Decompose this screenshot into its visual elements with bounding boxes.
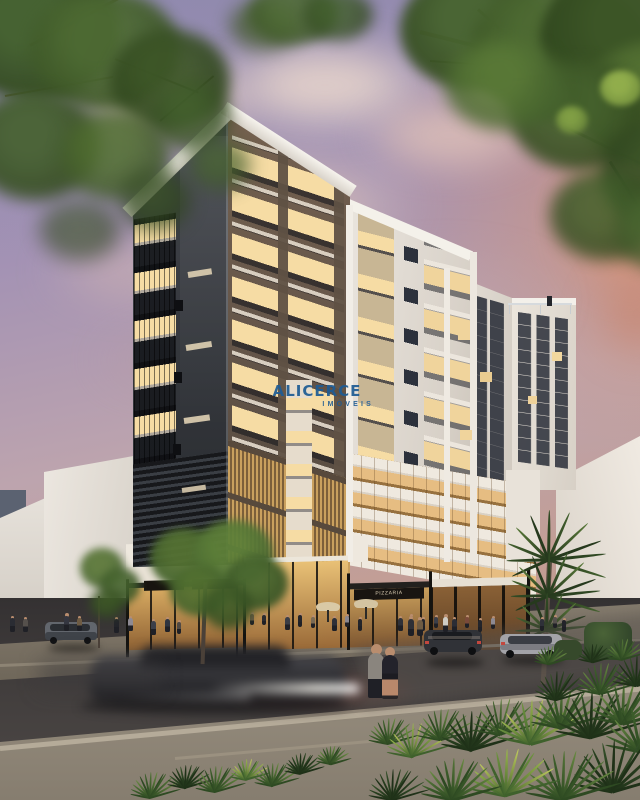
architectural-rendering: PIZZARIA ALICERCE IMÓVEIS xyxy=(0,0,640,800)
watermark-tagline: IMÓVEIS xyxy=(250,401,384,408)
watermark-layer: ALICERCE IMÓVEIS xyxy=(0,0,640,800)
watermark-brand: ALICERCE xyxy=(250,383,384,400)
watermark: ALICERCE IMÓVEIS xyxy=(250,383,384,408)
